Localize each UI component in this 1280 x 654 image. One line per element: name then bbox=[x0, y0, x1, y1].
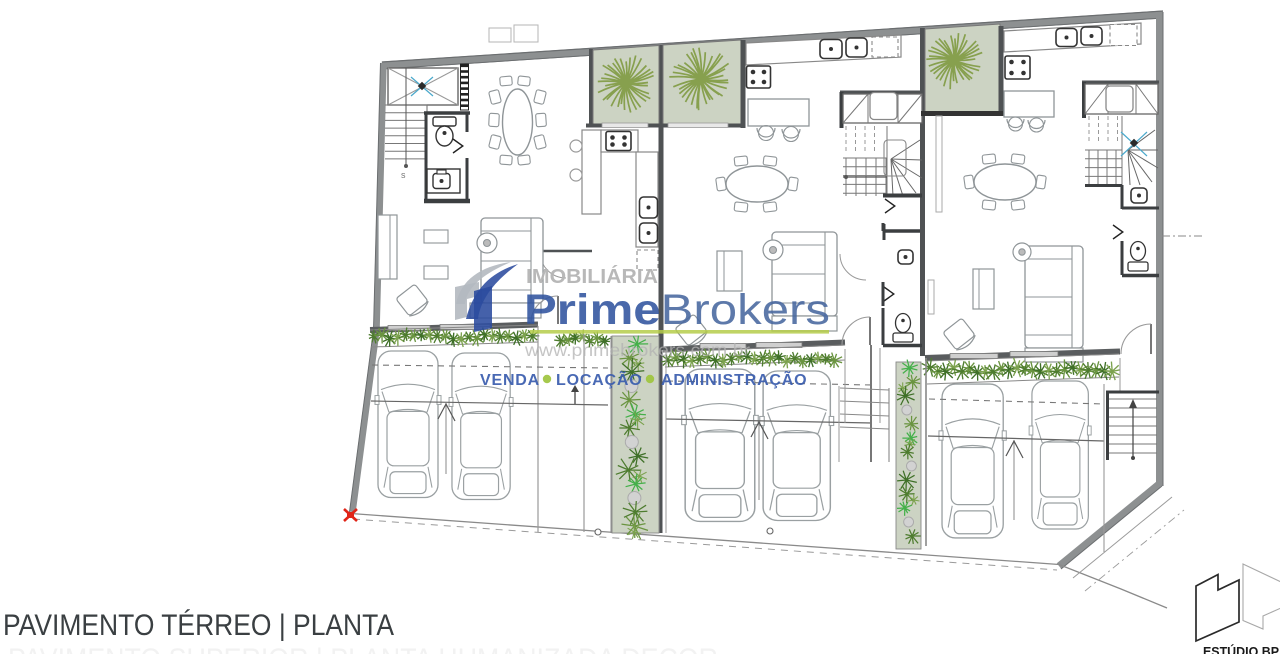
svg-text:PAVIMENTO TÉRREO | PLANTA: PAVIMENTO TÉRREO | PLANTA bbox=[3, 609, 394, 642]
svg-text:PAVIMENTO SUPERIOR | PLANTA HU: PAVIMENTO SUPERIOR | PLANTA HUMANIZADA D… bbox=[8, 643, 718, 654]
svg-text:ESTÚDIO BP: ESTÚDIO BP bbox=[1203, 644, 1279, 654]
